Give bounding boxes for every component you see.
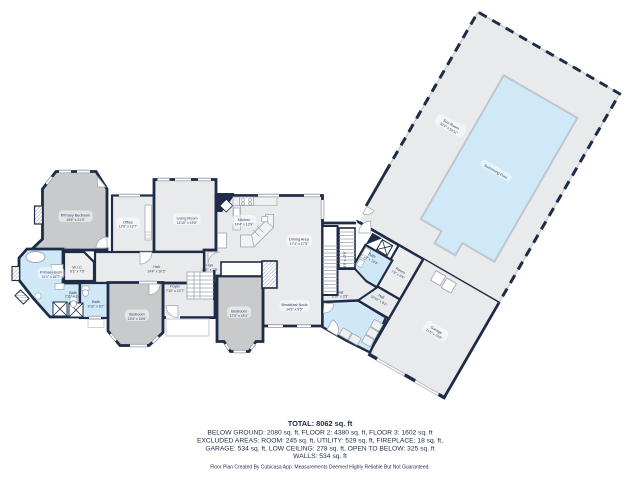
svg-text:14'10" x 19'5": 14'10" x 19'5" <box>177 221 198 225</box>
svg-text:12'6" x 13'7": 12'6" x 13'7" <box>119 225 138 229</box>
svg-text:BELOW GROUND: 2080 sq. ft, FLO: BELOW GROUND: 2080 sq. ft, FLOOR 2: 4380… <box>207 430 432 437</box>
svg-text:13'4" x 16'6": 13'4" x 16'6" <box>128 317 147 321</box>
svg-text:10'8" x 2'5": 10'8" x 2'5" <box>201 268 219 272</box>
svg-text:8'1" x 7'0": 8'1" x 7'0" <box>70 270 86 274</box>
svg-text:7'10" x 13'7": 7'10" x 13'7" <box>166 289 185 293</box>
svg-text:4'9" x 17'6": 4'9" x 17'6" <box>343 250 347 268</box>
svg-text:Floor Plan Created By Cubicasa: Floor Plan Created By Cubicasa App. Meas… <box>210 465 430 471</box>
svg-text:9'10" x 8'2": 9'10" x 8'2" <box>88 304 106 308</box>
svg-text:9'10" x 3'3": 9'10" x 3'3" <box>332 295 350 299</box>
svg-text:14'3" x 9'5": 14'3" x 9'5" <box>286 307 304 311</box>
svg-text:11'1" x 16'7": 11'1" x 16'7" <box>42 275 61 279</box>
svg-text:Primary Bedroom: Primary Bedroom <box>61 214 91 218</box>
svg-text:14'4" x 10'2": 14'4" x 10'2" <box>147 269 166 273</box>
svg-text:2'11" x 3'4": 2'11" x 3'4" <box>65 294 82 298</box>
svg-text:15'6" x 21'4": 15'6" x 21'4" <box>66 218 85 222</box>
svg-text:GARAGE: 534 sq. ft, LOW CEILIN: GARAGE: 534 sq. ft, LOW CEILING: 278 sq.… <box>205 446 434 453</box>
svg-text:EXCLUDED AREAS: ROOM: 245 sq.: EXCLUDED AREAS: ROOM: 245 sq. ft, UTILIT… <box>197 438 443 445</box>
svg-text:17'0" x 18'1": 17'0" x 18'1" <box>230 314 249 318</box>
svg-text:14'4" x 13'9": 14'4" x 13'9" <box>235 222 254 226</box>
svg-text:TOTAL: 8062 sq. ft: TOTAL: 8062 sq. ft <box>288 419 353 428</box>
svg-text:WALLS: 534 sq. ft: WALLS: 534 sq. ft <box>293 453 347 460</box>
svg-text:17'4" x 17'5": 17'4" x 17'5" <box>290 242 309 246</box>
